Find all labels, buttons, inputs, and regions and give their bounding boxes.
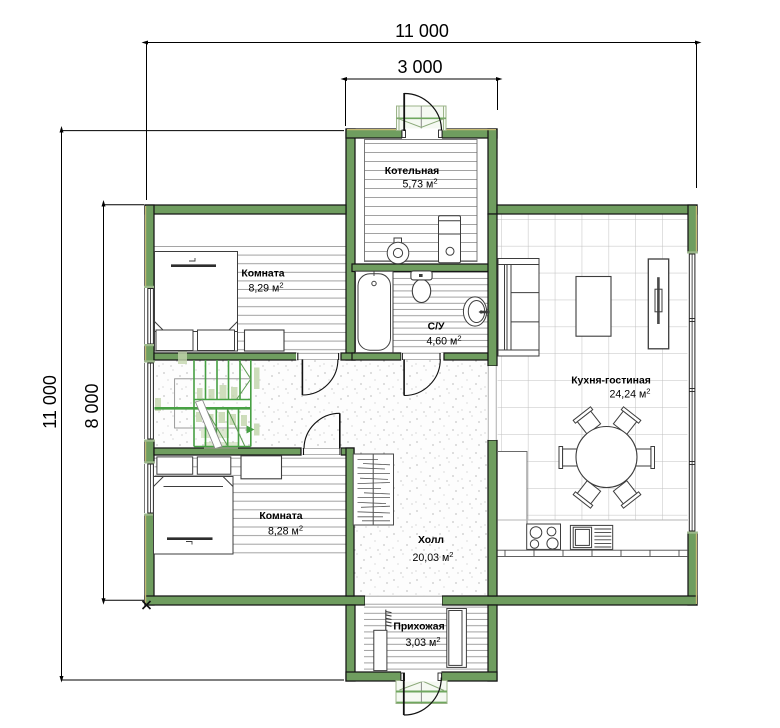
svg-text:8,28 м2: 8,28 м2 xyxy=(268,524,303,538)
svg-text:24,24 м2: 24,24 м2 xyxy=(610,387,651,401)
svg-text:Комната: Комната xyxy=(241,269,284,280)
svg-text:Комната: Комната xyxy=(259,511,302,522)
svg-text:8,29 м2: 8,29 м2 xyxy=(248,281,283,295)
svg-text:4,60 м2: 4,60 м2 xyxy=(426,334,461,348)
svg-text:3,03 м2: 3,03 м2 xyxy=(405,635,440,649)
svg-text:Прихожая: Прихожая xyxy=(393,622,444,633)
svg-text:8 000: 8 000 xyxy=(82,383,102,428)
svg-text:11 000: 11 000 xyxy=(395,21,449,41)
svg-text:Котельная: Котельная xyxy=(385,166,439,177)
svg-text:Холл: Холл xyxy=(418,535,444,546)
svg-text:3 000: 3 000 xyxy=(397,57,442,77)
svg-text:20,03 м2: 20,03 м2 xyxy=(413,550,454,564)
svg-text:5,73 м2: 5,73 м2 xyxy=(402,177,437,191)
svg-text:С/У: С/У xyxy=(428,322,445,333)
svg-text:11 000: 11 000 xyxy=(40,375,60,429)
svg-text:Кухня-гостиная: Кухня-гостиная xyxy=(571,376,651,387)
